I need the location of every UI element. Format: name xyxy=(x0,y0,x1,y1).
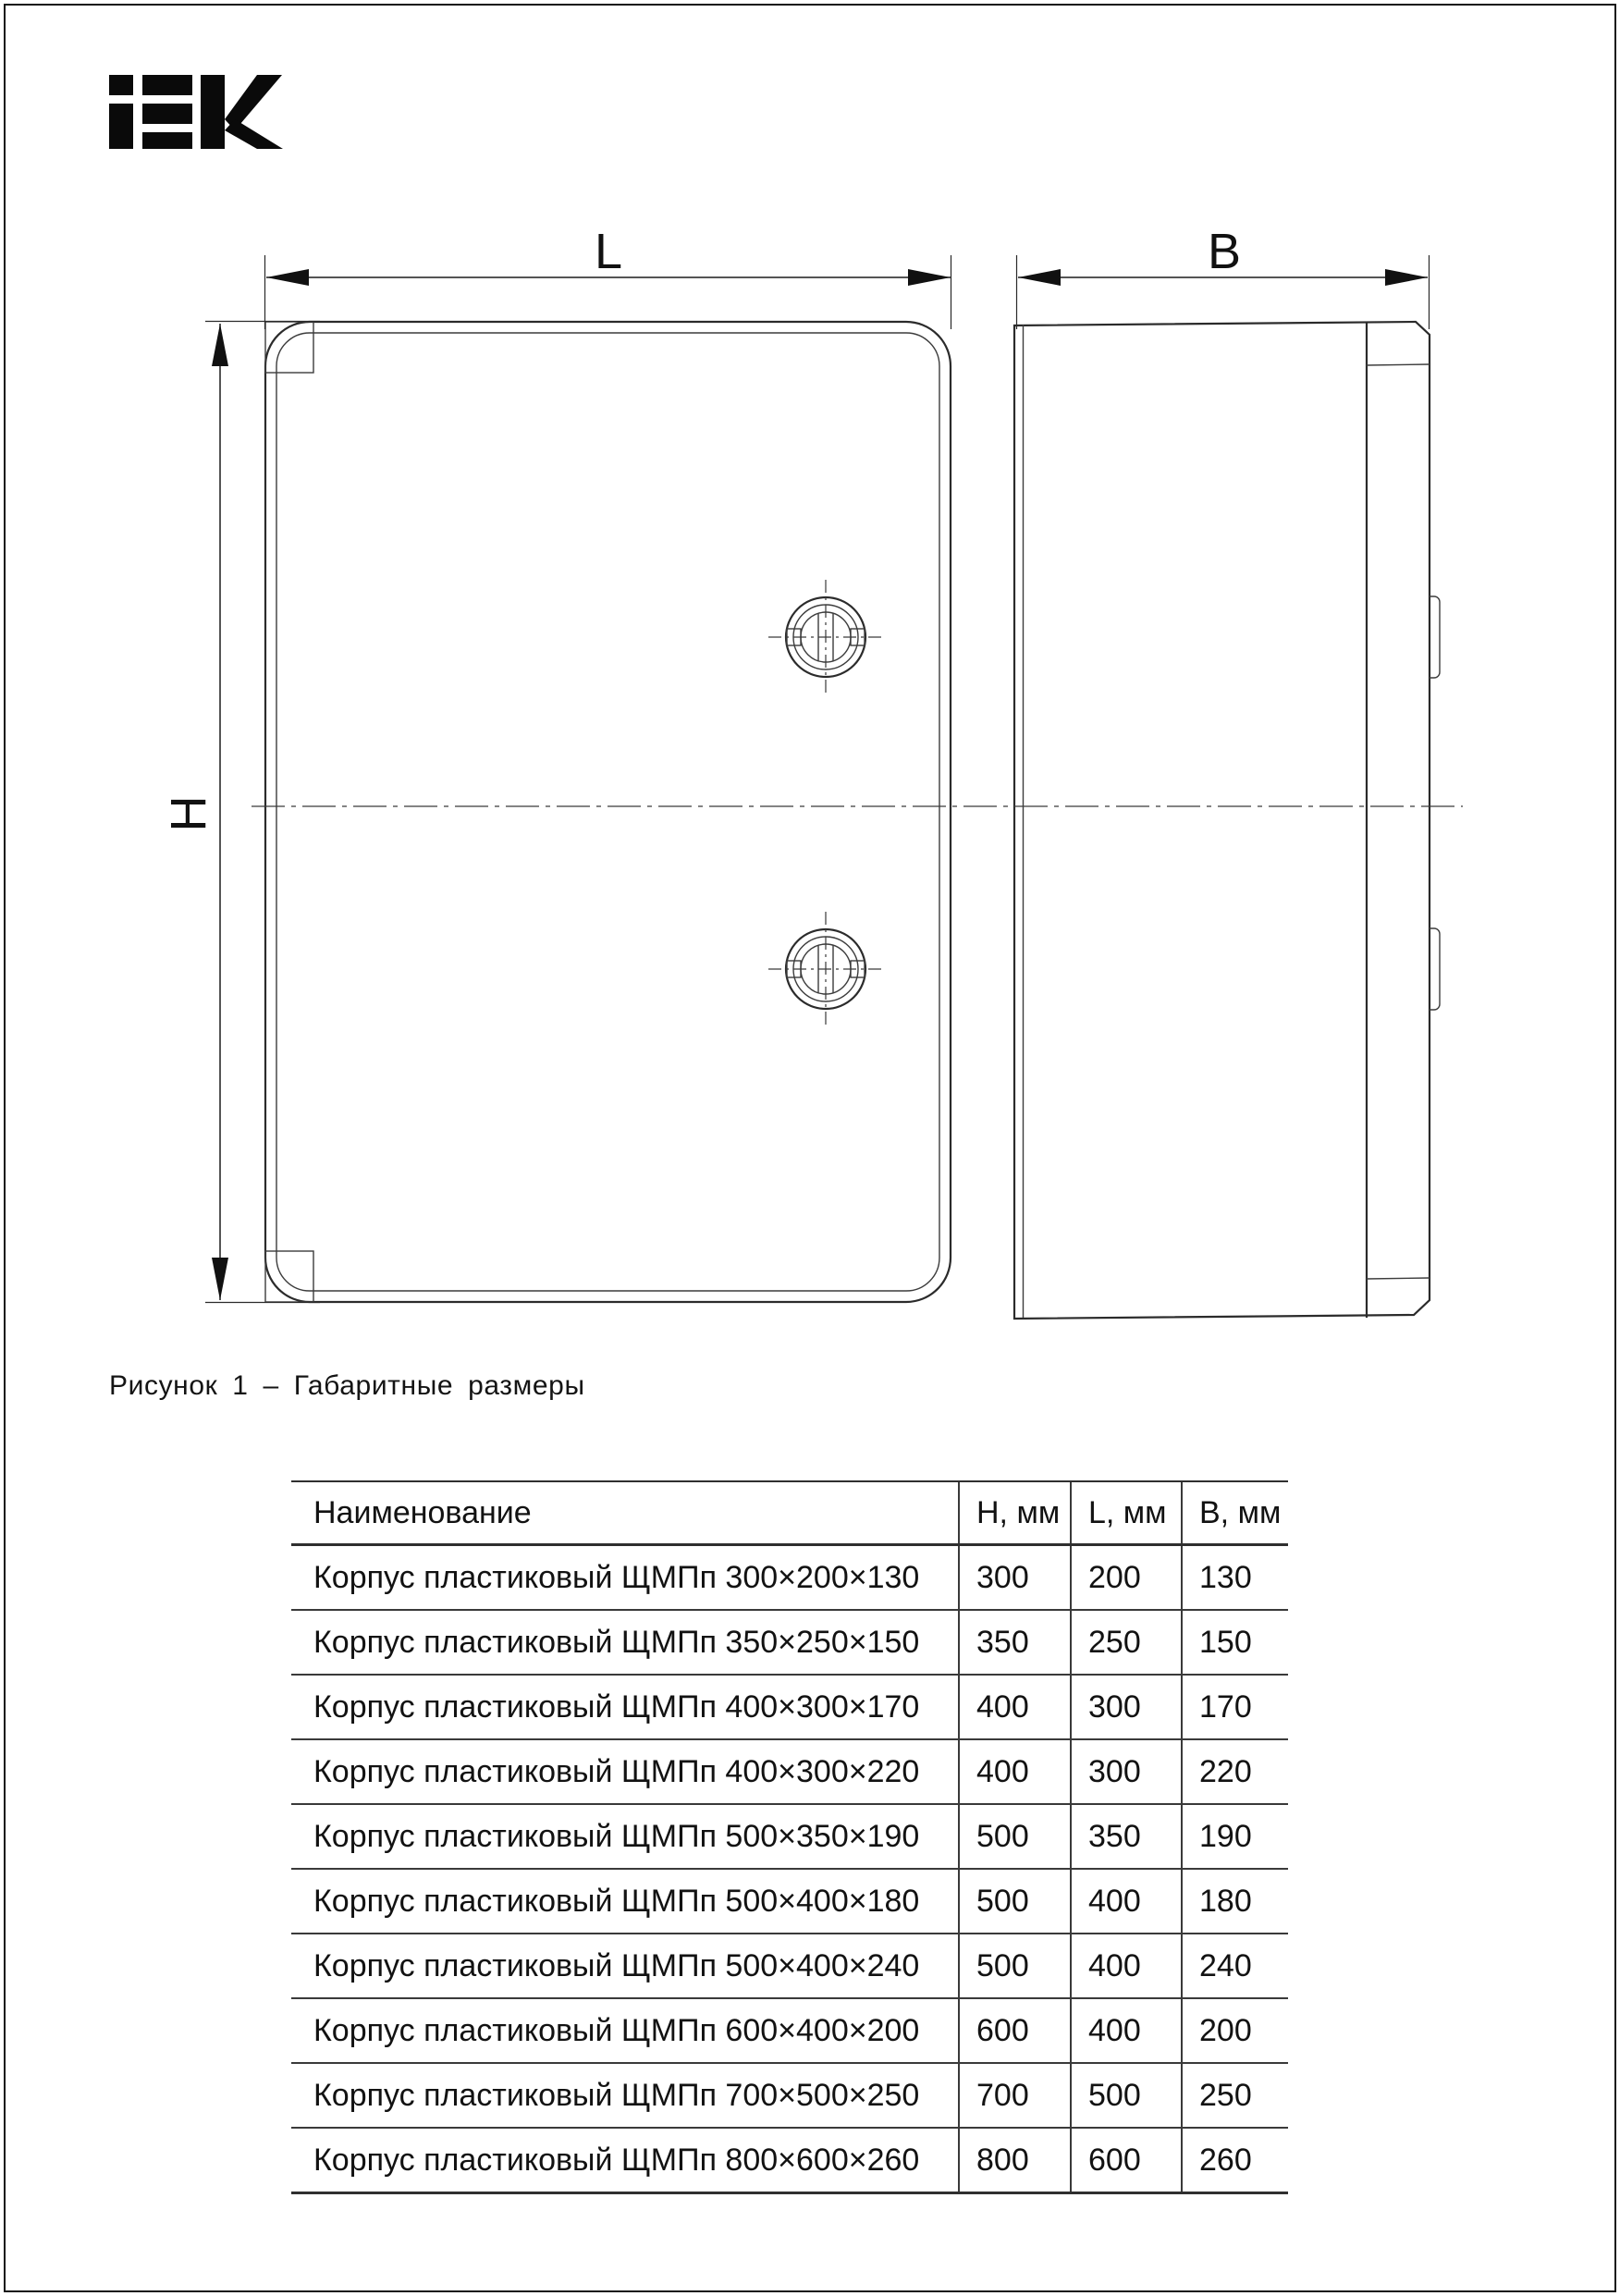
side-view xyxy=(1014,322,1440,1319)
height-value: 800 xyxy=(959,2128,1071,2193)
length-value: 300 xyxy=(1071,1675,1182,1739)
dimension-B: B xyxy=(1017,224,1430,329)
table-row: Корпус пластиковый ЩМПп 500×350×19050035… xyxy=(291,1804,1288,1869)
depth-value: 190 xyxy=(1182,1804,1288,1869)
dimensions-table: Наименование Н, мм L, мм В, мм Корпус пл… xyxy=(291,1480,1288,2194)
length-value: 400 xyxy=(1071,1998,1182,2063)
length-value: 350 xyxy=(1071,1804,1182,1869)
height-value: 600 xyxy=(959,1998,1071,2063)
arrow-down-icon xyxy=(212,1258,228,1300)
length-value: 200 xyxy=(1071,1545,1182,1611)
table-header: Наименование Н, мм L, мм В, мм xyxy=(291,1481,1288,1545)
product-name: Корпус пластиковый ЩМПп 500×400×180 xyxy=(291,1869,959,1934)
dimension-drawing: L B H xyxy=(0,0,1620,1443)
corner-cap-bottom-left xyxy=(265,1251,313,1302)
height-value: 500 xyxy=(959,1804,1071,1869)
col-header-length: L, мм xyxy=(1071,1481,1182,1545)
height-value: 300 xyxy=(959,1545,1071,1611)
dimension-L: L xyxy=(265,224,951,329)
length-value: 600 xyxy=(1071,2128,1182,2193)
height-value: 700 xyxy=(959,2063,1071,2128)
product-name: Корпус пластиковый ЩМПп 500×350×190 xyxy=(291,1804,959,1869)
table-row: Корпус пластиковый ЩМПп 600×400×20060040… xyxy=(291,1998,1288,2063)
product-name: Корпус пластиковый ЩМПп 800×600×260 xyxy=(291,2128,959,2193)
table-row: Корпус пластиковый ЩМПп 300×200×13030020… xyxy=(291,1545,1288,1611)
arrow-right-icon xyxy=(1385,269,1428,286)
depth-value: 200 xyxy=(1182,1998,1288,2063)
front-view xyxy=(265,322,951,1302)
length-value: 500 xyxy=(1071,2063,1182,2128)
length-value: 250 xyxy=(1071,1610,1182,1675)
depth-value: 240 xyxy=(1182,1934,1288,1998)
product-name: Корпус пластиковый ЩМПп 300×200×130 xyxy=(291,1545,959,1611)
door-lock-upper xyxy=(768,580,883,694)
col-header-name: Наименование xyxy=(291,1481,959,1545)
length-value: 400 xyxy=(1071,1934,1182,1998)
product-name: Корпус пластиковый ЩМПп 600×400×200 xyxy=(291,1998,959,2063)
depth-value: 170 xyxy=(1182,1675,1288,1739)
table-row: Корпус пластиковый ЩМПп 500×400×24050040… xyxy=(291,1934,1288,1998)
length-value: 300 xyxy=(1071,1739,1182,1804)
arrow-left-icon xyxy=(266,269,309,286)
depth-value: 250 xyxy=(1182,2063,1288,2128)
wall-bracket-lower xyxy=(1430,928,1440,1010)
dim-label-H: H xyxy=(161,796,216,832)
table-row: Корпус пластиковый ЩМПп 500×400×18050040… xyxy=(291,1869,1288,1934)
corner-cap-top-left xyxy=(265,322,313,373)
table-row: Корпус пластиковый ЩМПп 800×600×26080060… xyxy=(291,2128,1288,2193)
height-value: 350 xyxy=(959,1610,1071,1675)
product-name: Корпус пластиковый ЩМПп 350×250×150 xyxy=(291,1610,959,1675)
length-value: 400 xyxy=(1071,1869,1182,1934)
product-name: Корпус пластиковый ЩМПп 500×400×240 xyxy=(291,1934,959,1998)
depth-value: 220 xyxy=(1182,1739,1288,1804)
figure-caption: Рисунок 1 – Габаритные размеры xyxy=(109,1370,585,1402)
datasheet-page: L B H Рисунок 1 – Габаритные размеры xyxy=(0,0,1620,2296)
table-row: Корпус пластиковый ЩМПп 350×250×15035025… xyxy=(291,1610,1288,1675)
table-row: Корпус пластиковый ЩМПп 400×300×17040030… xyxy=(291,1675,1288,1739)
depth-value: 180 xyxy=(1182,1869,1288,1934)
depth-value: 130 xyxy=(1182,1545,1288,1611)
dim-label-L: L xyxy=(595,224,622,279)
wall-bracket-upper xyxy=(1430,596,1440,678)
door-lock-lower xyxy=(768,912,883,1026)
height-value: 500 xyxy=(959,1869,1071,1934)
height-value: 500 xyxy=(959,1934,1071,1998)
table-row: Корпус пластиковый ЩМПп 400×300×22040030… xyxy=(291,1739,1288,1804)
product-name: Корпус пластиковый ЩМПп 400×300×170 xyxy=(291,1675,959,1739)
col-header-depth: В, мм xyxy=(1182,1481,1288,1545)
dim-label-B: B xyxy=(1208,224,1241,279)
height-value: 400 xyxy=(959,1675,1071,1739)
depth-value: 150 xyxy=(1182,1610,1288,1675)
col-header-height: Н, мм xyxy=(959,1481,1071,1545)
table-row: Корпус пластиковый ЩМПп 700×500×25070050… xyxy=(291,2063,1288,2128)
arrow-up-icon xyxy=(212,324,228,366)
dimension-H: H xyxy=(161,322,320,1303)
height-value: 400 xyxy=(959,1739,1071,1804)
product-name: Корпус пластиковый ЩМПп 400×300×220 xyxy=(291,1739,959,1804)
depth-value: 260 xyxy=(1182,2128,1288,2193)
product-name: Корпус пластиковый ЩМПп 700×500×250 xyxy=(291,2063,959,2128)
table-body: Корпус пластиковый ЩМПп 300×200×13030020… xyxy=(291,1545,1288,2193)
arrow-left-icon xyxy=(1018,269,1061,286)
arrow-right-icon xyxy=(908,269,951,286)
